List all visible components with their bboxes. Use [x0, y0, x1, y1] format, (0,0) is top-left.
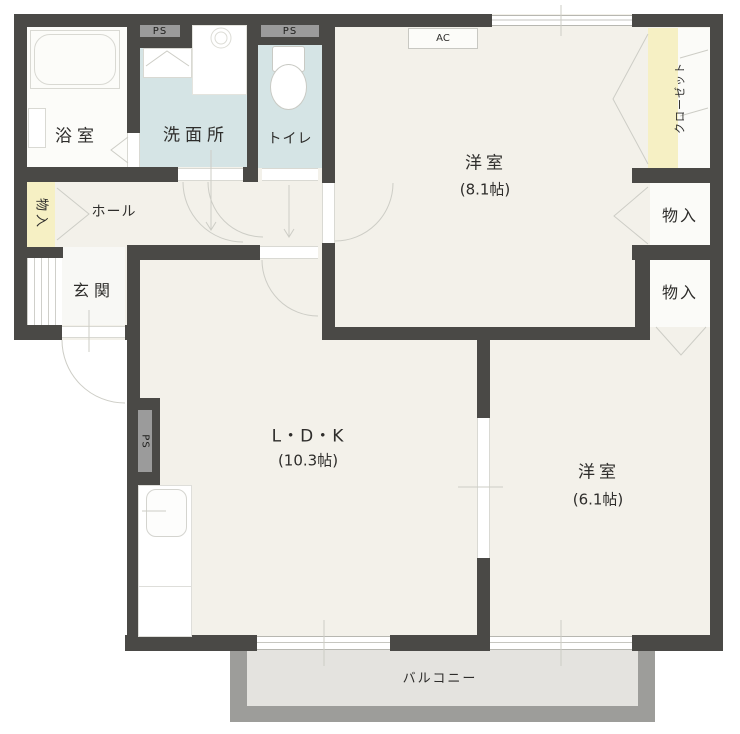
ac-label: AC	[436, 33, 450, 44]
ps-label: PS	[283, 26, 297, 37]
floor-lower-block	[127, 340, 723, 650]
balcony-label: バルコニー	[403, 673, 478, 686]
wall-below-storage-left	[14, 247, 63, 258]
wall-ldk-room2-lower	[477, 558, 490, 635]
ac-badge: AC	[408, 28, 478, 49]
entrance-steps	[27, 258, 62, 325]
kitchen-sink-icon	[146, 489, 187, 537]
entrance-door-opening	[62, 326, 125, 338]
wall-ldk-room2-upper	[477, 340, 490, 418]
hall-ldk-door-opening	[260, 246, 318, 259]
entrance-door-arc	[62, 340, 125, 403]
bath-label: 浴室	[55, 129, 99, 146]
window-top	[492, 15, 632, 26]
wall-right	[710, 14, 723, 650]
entrance-label: 玄関	[73, 283, 115, 299]
toilet-bowl-icon	[270, 64, 307, 110]
ps-badge-toilet: PS	[261, 25, 319, 37]
room2-size: (6.1帖)	[573, 493, 624, 508]
bath-unit-icon	[28, 108, 46, 148]
ldk-label: L・D・K	[272, 429, 345, 446]
room2-sliding-door	[477, 418, 490, 558]
storage-lower-label: 物入	[662, 285, 698, 301]
room2-label: 洋室	[578, 465, 620, 482]
wall-entrance-bottom-a	[14, 325, 62, 340]
balcony-wall-right	[638, 648, 655, 722]
washroom-door-opening	[178, 168, 243, 181]
storage-left-label: 物入	[35, 198, 48, 230]
wall-storage-lower-left	[635, 260, 650, 327]
washroom-label: 洗面所	[163, 128, 229, 145]
wall-closet-bottom	[632, 168, 710, 183]
wall-bottom-c	[632, 635, 723, 651]
ps-badge-washroom: PS	[140, 25, 180, 37]
wall-mid-column	[322, 243, 335, 327]
washing-machine-pan-icon	[192, 25, 247, 95]
wall-between-rooms	[322, 327, 650, 340]
toilet-label: トイレ	[268, 132, 313, 146]
kitchen-counter-divider	[139, 586, 191, 587]
room1-label: 洋室	[465, 156, 507, 173]
bathtub-icon	[34, 34, 116, 85]
ps-label: PS	[153, 26, 167, 37]
window-room2-balcony	[490, 636, 632, 650]
floor-plan: PS PS PS AC	[0, 0, 740, 734]
ldk-size: (10.3帖)	[278, 454, 338, 469]
wall-washroom-toilet	[247, 14, 258, 167]
window-ldk-balcony	[257, 636, 390, 650]
room1-door-opening	[322, 183, 335, 243]
balcony-wall-bottom	[230, 706, 655, 722]
toilet-door-opening	[262, 168, 318, 181]
bath-door-opening	[127, 133, 140, 167]
wall-hall-top-a	[14, 167, 178, 182]
wall-storage-mid	[632, 245, 710, 260]
wall-toilet-right	[322, 14, 335, 183]
ps-badge-ldk: PS	[138, 410, 152, 472]
hall-label: ホール	[92, 205, 137, 219]
vanity-icon	[143, 48, 192, 78]
wall-bottom-b	[390, 635, 490, 651]
wall-hall-ldk	[127, 245, 260, 260]
storage-upper-label: 物入	[662, 208, 698, 224]
wall-bath-washroom	[127, 27, 140, 133]
wall-bottom-a	[125, 635, 257, 651]
wall-hall-top-b	[243, 167, 258, 182]
ps-label: PS	[140, 434, 151, 448]
closet-label: クローゼット	[675, 62, 686, 134]
room1-size: (8.1帖)	[460, 183, 511, 198]
